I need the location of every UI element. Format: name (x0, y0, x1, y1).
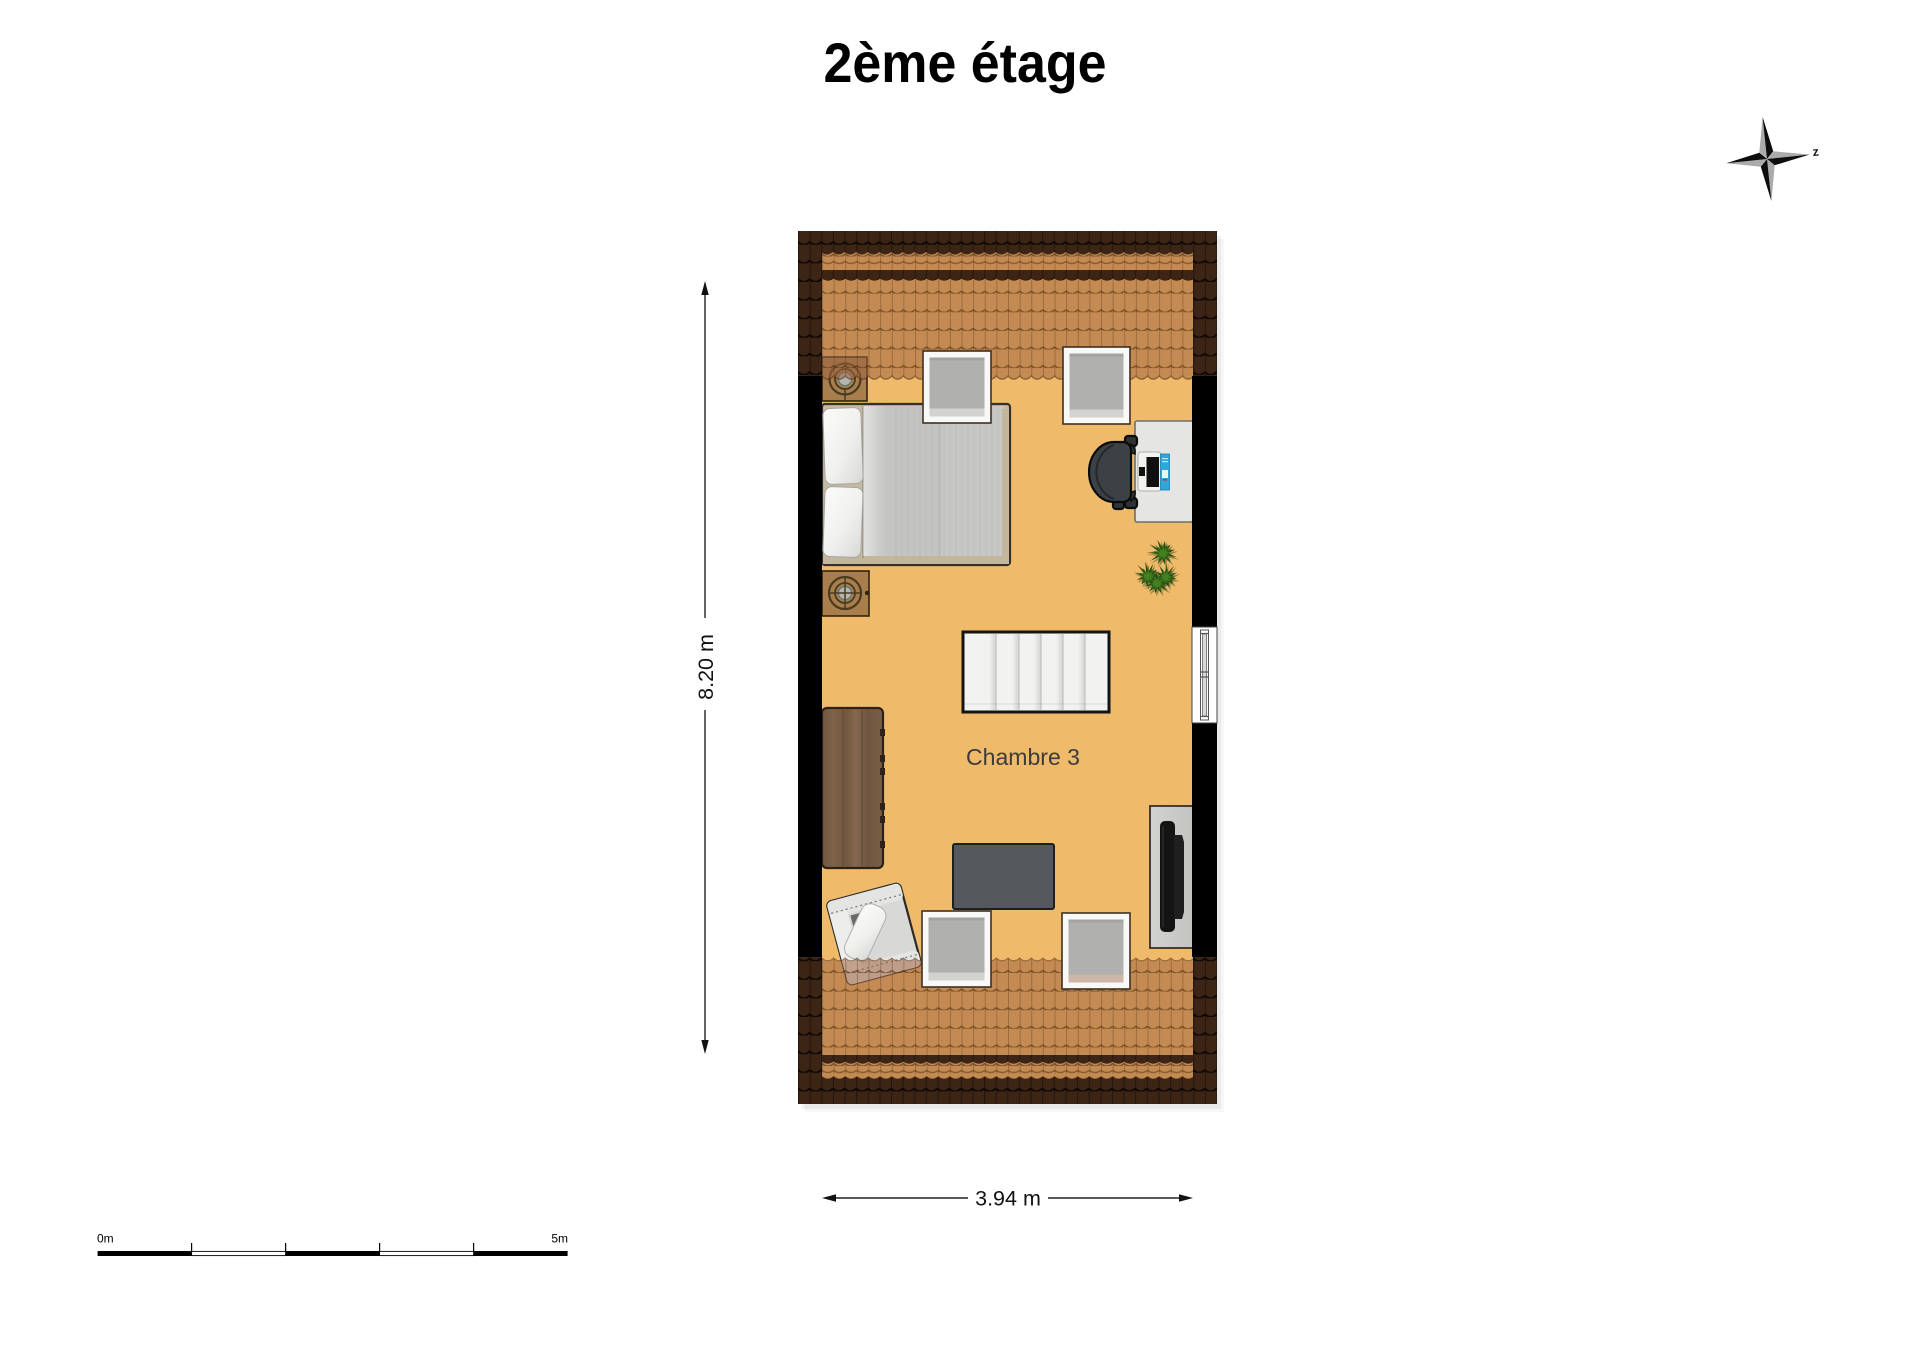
svg-text:8.20 m: 8.20 m (694, 634, 718, 700)
svg-text:0m: 0m (97, 1232, 114, 1246)
svg-text:Chambre 3: Chambre 3 (966, 744, 1080, 770)
svg-text:5m: 5m (551, 1232, 568, 1246)
svg-text:z: z (1812, 145, 1820, 160)
svg-text:2ème étage: 2ème étage (824, 31, 1107, 94)
svg-text:3.94 m: 3.94 m (975, 1187, 1041, 1211)
